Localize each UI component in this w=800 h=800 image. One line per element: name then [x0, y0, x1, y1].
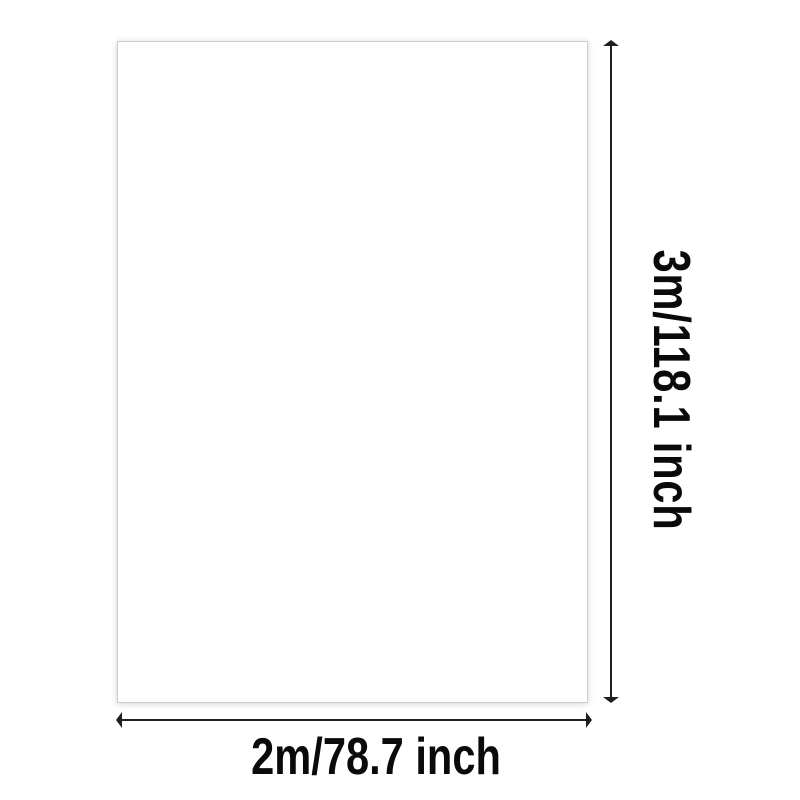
product-sheet [117, 41, 588, 703]
width-dimension-label: 2m/78.7 inch [251, 727, 501, 787]
arrow-right-icon [586, 712, 592, 728]
width-dimension-line [122, 719, 586, 721]
arrow-down-icon [603, 697, 619, 703]
height-dimension-line [610, 45, 612, 699]
product-dimension-image: 3m/118.1 inch 2m/78.7 inch [0, 0, 800, 800]
height-dimension-label: 3m/118.1 inch [641, 250, 701, 531]
